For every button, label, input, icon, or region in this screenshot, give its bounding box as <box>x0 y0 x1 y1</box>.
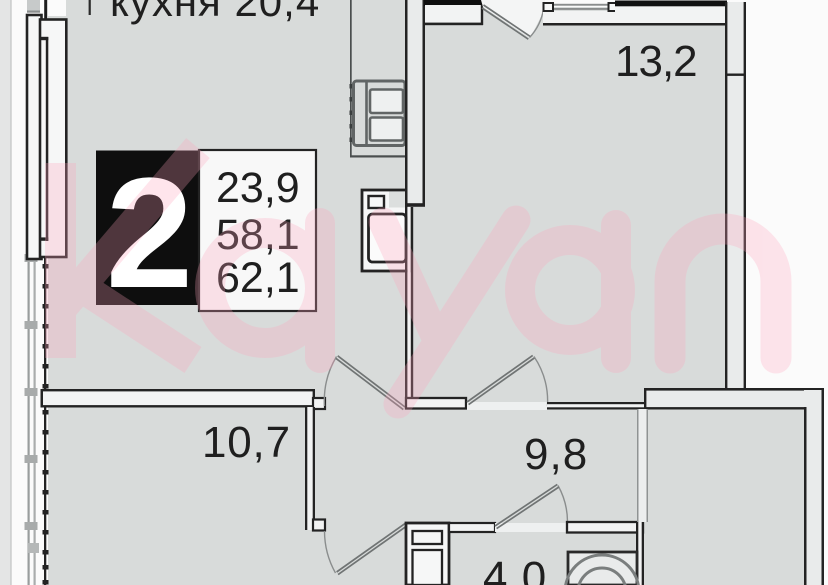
svg-text:4,0: 4,0 <box>483 553 547 585</box>
svg-text:кухня 20,4: кухня 20,4 <box>110 0 320 25</box>
svg-text:10,7: 10,7 <box>202 418 291 467</box>
svg-text:13,2: 13,2 <box>615 37 697 86</box>
svg-text:23,9: 23,9 <box>216 164 300 212</box>
svg-text:9,8: 9,8 <box>524 430 588 479</box>
